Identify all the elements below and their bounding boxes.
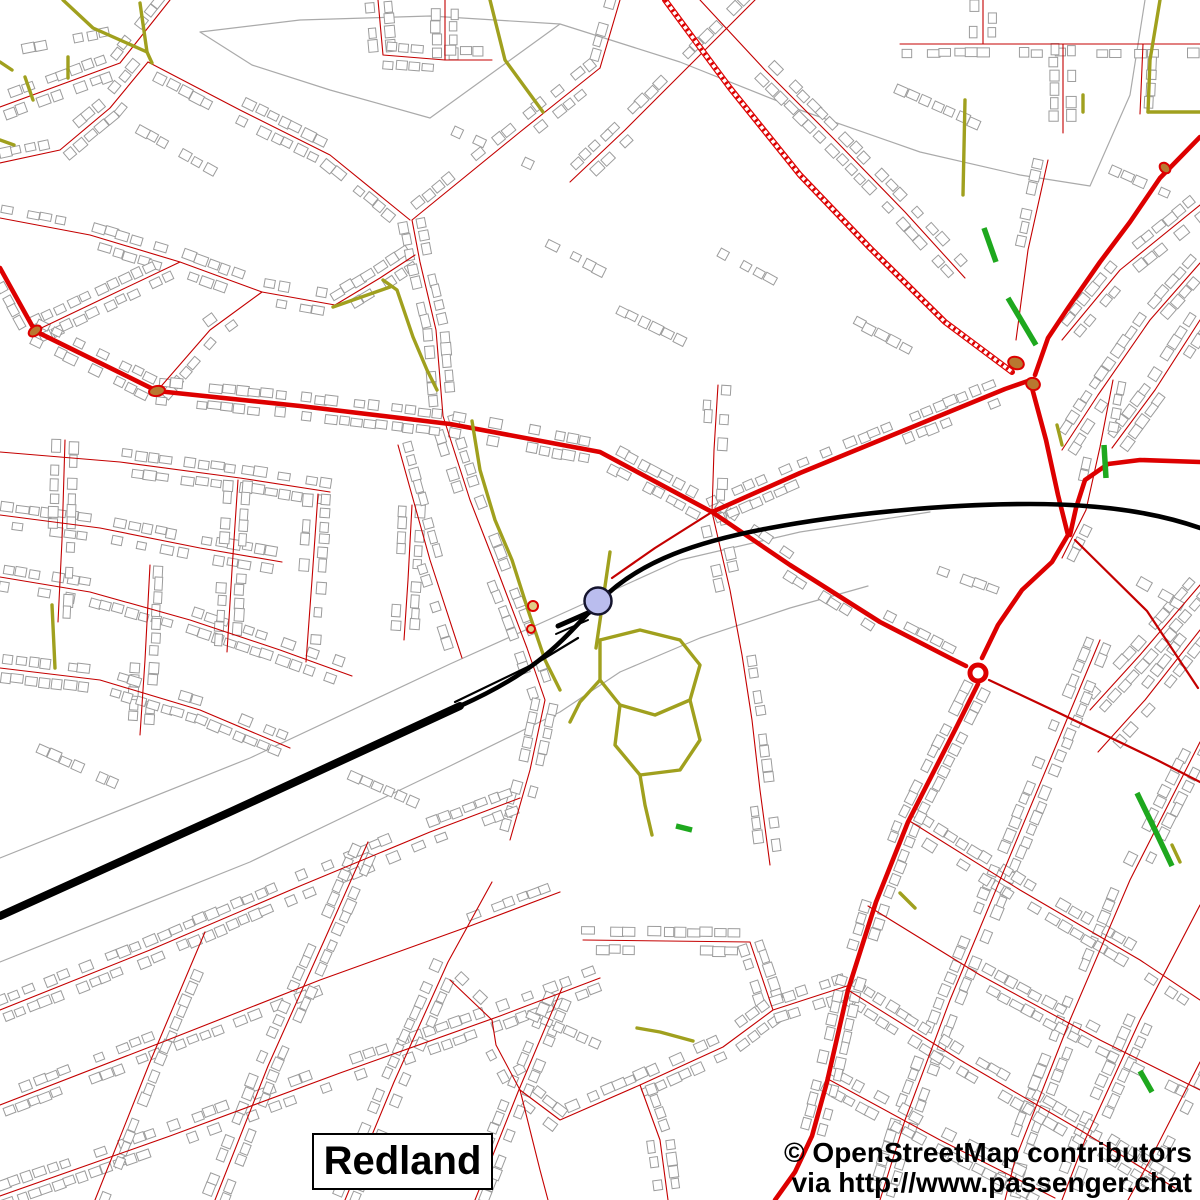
building-footprint [79,291,91,302]
building-footprint [320,477,332,488]
building-footprint [700,946,713,955]
building-footprint [198,460,209,470]
building-footprint [111,47,124,60]
building-footprint [392,422,403,432]
building-footprint [432,409,442,419]
building-footprint [1065,1109,1079,1122]
building-footprint [236,641,250,652]
building-footprint [149,277,162,289]
building-footprint [317,547,327,558]
building-footprint [441,636,454,650]
building-footprint [386,850,401,864]
building-footprint [320,950,332,964]
building-footprint [857,151,870,164]
building-footprint [1026,824,1037,836]
building-footprint [238,533,246,546]
building-footprint [0,673,11,684]
building-footprint [1067,547,1080,562]
building-footprint [215,634,223,646]
building-footprint [701,525,712,538]
building-footprint [63,1175,76,1186]
building-footprint [533,1086,546,1099]
building-footprint [240,509,248,521]
building-footprint [63,606,71,618]
building-footprint [1112,931,1126,944]
building-footprint [1028,1075,1042,1090]
building-footprint [1046,1082,1058,1095]
building-footprint [819,979,830,989]
building-footprint [763,772,774,783]
building-footprint [854,173,866,185]
building-footprint [864,1009,878,1021]
building-footprint [823,1108,833,1120]
building-footprint [526,442,538,454]
building-footprint [27,211,40,220]
building-footprint [932,255,945,268]
building-footprint [1084,314,1096,326]
building-footprint [191,694,203,705]
building-footprint [113,376,125,388]
building-footprint [170,378,183,389]
building-footprint [233,1015,248,1027]
building-footprint [1062,1047,1073,1060]
building-footprint [1141,1023,1152,1035]
building-footprint [1028,990,1042,1002]
building-footprint [830,1001,840,1013]
building-footprint [423,329,433,342]
building-footprint [242,98,257,112]
building-footprint [294,143,308,157]
building-footprint [438,442,450,456]
building-footprint [202,1105,216,1117]
building-footprint [387,42,397,51]
building-footprint [1068,46,1076,56]
building-footprint [473,990,488,1005]
building-footprint [843,1096,855,1107]
building-footprint [15,1100,30,1112]
building-footprint [735,1015,748,1028]
building-footprint [852,1080,865,1093]
building-footprint [368,28,376,39]
building-footprint [672,477,685,490]
building-footprint [1102,1106,1114,1118]
building-footprint [539,446,550,456]
building-footprint [405,405,416,415]
building-footprint [94,1146,107,1157]
building-footprint [1051,1069,1063,1082]
building-footprint [221,402,233,411]
building-footprint [395,268,408,281]
building-footprint [988,13,996,23]
building-footprint [1055,898,1070,912]
building-footprint [248,388,260,397]
building-footprint [497,1070,510,1084]
building-footprint [732,485,744,496]
building-footprint [39,1184,52,1195]
building-footprint [144,1129,156,1140]
building-footprint [911,206,923,218]
building-footprint [888,831,899,843]
building-footprint [1083,637,1093,648]
building-footprint [233,404,245,414]
building-footprint [460,450,470,463]
building-footprint [254,543,265,554]
building-footprint [571,66,586,80]
building-footprint [238,714,253,728]
building-footprint [501,123,516,137]
building-footprint [185,981,198,995]
building-footprint [214,924,227,937]
building-footprint [429,958,443,972]
building-footprint [982,963,996,976]
building-footprint [38,678,50,689]
building-footprint [226,918,239,930]
building-footprint [932,101,945,113]
building-footprint [115,230,130,242]
building-footprint [188,935,203,949]
building-footprint [156,397,167,406]
building-footprint [154,242,169,253]
building-footprint [1066,96,1076,107]
building-footprint [421,243,431,256]
building-footprint [113,248,124,259]
building-footprint [847,939,859,951]
building-footprint [462,802,476,813]
building-footprint [348,886,360,899]
building-footprint [693,1040,708,1053]
building-footprint [883,885,895,899]
building-footprint [136,1053,148,1063]
building-footprint [883,610,896,623]
building-footprint [771,839,781,852]
building-footprint [242,465,255,475]
building-footprint [398,222,409,235]
building-footprint [747,655,757,667]
building-footprint [455,437,467,449]
building-footprint [111,603,124,614]
building-footprint [291,491,302,501]
building-footprint [437,625,449,639]
building-footprint [397,532,405,545]
building-footprint [1133,312,1147,326]
building-footprint [1051,44,1059,55]
building-footprint [1016,982,1030,994]
building-footprint [974,902,984,914]
building-footprint [368,39,378,52]
building-footprint [85,306,99,319]
building-footprint [1,1197,15,1200]
building-footprint [243,735,257,746]
building-footprint [430,601,441,612]
building-footprint [268,1101,281,1113]
building-footprint [1123,851,1137,866]
building-footprint [1183,312,1196,327]
building-footprint [390,1094,403,1108]
building-footprint [110,967,123,978]
building-footprint [1079,958,1090,971]
building-footprint [686,485,699,498]
building-footprint [289,659,302,672]
building-footprint [836,154,848,166]
building-footprint [909,823,920,837]
place-label-redland: Redland [312,1133,493,1190]
building-footprint [192,1111,205,1122]
building-footprint [319,534,329,544]
building-footprint [551,84,564,97]
building-footprint [414,546,422,557]
building-footprint [519,749,530,762]
building-footprint [211,461,225,470]
building-footprint [1142,675,1155,688]
building-footprint [428,530,438,544]
building-footprint [491,590,503,604]
building-footprint [142,371,157,384]
building-footprint [503,1129,515,1142]
building-footprint [817,1123,828,1136]
building-footprint [1067,109,1076,121]
building-footprint [824,116,838,130]
building-footprint [320,1083,332,1094]
building-footprint [220,518,230,529]
building-footprint [561,449,575,461]
building-footprint [620,135,633,148]
building-footprint [88,1166,102,1178]
building-footprint [596,22,609,36]
building-footprint [63,147,76,160]
building-footprint [50,1087,62,1098]
building-footprint [460,1013,472,1024]
building-footprint [276,299,287,308]
building-footprint [868,928,880,941]
building-footprint [320,522,329,532]
building-footprint [1188,48,1200,58]
building-footprint [397,543,406,554]
building-footprint [727,561,738,573]
building-footprint [954,254,967,267]
building-footprint [589,1037,601,1049]
building-footprint [95,283,109,295]
building-footprint [853,923,864,936]
building-footprint [388,1056,400,1068]
building-footprint [350,1191,361,1200]
building-footprint [717,478,727,489]
building-footprint [160,544,174,555]
building-footprint [392,404,403,412]
building-footprint [1164,675,1177,688]
building-footprint [669,1052,684,1066]
building-footprint [736,1038,750,1051]
building-footprint [1189,598,1200,611]
junction-node [527,625,535,633]
building-footprint [465,463,476,475]
building-footprint [714,1052,727,1063]
building-footprint [320,508,330,518]
building-footprint [941,641,956,653]
building-footprint [1068,70,1076,81]
building-footprint [955,838,968,850]
building-footprint [118,272,132,284]
building-footprint [410,276,422,290]
building-footprint [976,1057,990,1069]
building-footprint [403,441,414,452]
building-footprint [429,427,440,436]
building-footprint [436,313,447,326]
building-footprint [506,627,518,640]
building-footprint [224,464,235,473]
building-footprint [902,431,915,444]
building-footprint [431,21,440,33]
building-footprint [48,519,57,529]
building-footprint [411,582,421,593]
building-footprint [1051,98,1058,109]
building-footprint [199,276,214,289]
building-footprint [265,883,277,895]
building-footprint [60,1159,71,1169]
building-footprint [236,574,246,584]
building-footprint [67,504,76,517]
building-footprint [78,512,92,521]
building-footprint [125,58,140,73]
building-footprint [411,195,425,209]
building-footprint [22,983,35,994]
building-footprint [183,919,195,929]
building-footprint [209,384,223,394]
building-footprint [664,927,673,936]
building-footprint [115,294,127,305]
building-footprint [316,287,327,298]
building-footprint [127,289,140,301]
building-footprint [67,478,77,489]
building-footprint [149,662,159,673]
building-footprint [93,1052,104,1062]
building-footprint [301,411,311,421]
building-footprint [16,505,30,514]
building-footprint [7,1175,20,1187]
building-footprint [281,638,296,651]
building-footprint [78,682,89,692]
building-footprint [1095,1074,1108,1088]
building-footprint [763,272,777,285]
building-footprint [824,1026,835,1040]
building-footprint [943,106,955,117]
building-footprint [55,216,66,225]
building-footprint [755,705,765,715]
building-footprint [170,706,184,717]
building-footprint [144,714,154,724]
building-footprint [203,930,216,943]
building-footprint [37,1091,52,1103]
building-footprint [1100,294,1113,307]
building-footprint [383,61,393,70]
building-footprint [503,1016,518,1029]
building-footprint [976,688,990,703]
building-footprint [840,1042,850,1055]
building-footprint [473,135,487,147]
building-footprint [73,338,85,349]
building-footprint [545,239,560,252]
building-footprint [749,668,759,678]
building-footprint [218,595,227,605]
building-footprint [3,107,17,120]
building-footprint [1090,1087,1103,1100]
building-footprint [1068,906,1082,919]
building-footprint [36,94,51,107]
building-footprint [66,542,74,552]
building-footprint [81,58,94,70]
building-footprint [217,610,225,621]
building-footprint [473,1008,485,1020]
building-footprint [396,60,407,70]
building-footprint [446,467,459,481]
building-footprint [67,296,81,308]
building-footprint [740,260,752,271]
building-footprint [132,365,144,376]
building-footprint [460,47,471,55]
building-footprint [921,759,933,773]
building-footprint [203,313,217,327]
building-footprint [116,1042,130,1053]
building-footprint [79,577,91,586]
building-footprint [216,1148,228,1162]
building-footprint [187,1034,199,1044]
building-footprint [159,455,172,464]
building-footprint [725,947,738,955]
building-footprint [260,388,273,398]
building-footprint [1120,436,1135,452]
building-footprint [1112,1082,1125,1094]
building-footprint [581,927,594,935]
building-footprint [488,417,502,429]
building-footprint [21,42,35,54]
building-footprint [416,218,426,229]
building-footprint [235,1154,247,1166]
building-footprint [876,1017,889,1029]
building-footprint [445,370,453,381]
building-footprint [1145,973,1158,986]
building-footprint [51,679,62,690]
building-footprint [874,328,889,342]
building-footprint [238,560,251,570]
building-footprint [129,942,141,953]
building-footprint [1195,210,1200,224]
building-footprint [324,395,338,406]
building-footprint [502,615,515,630]
building-footprint [114,1156,126,1169]
building-footprint [302,494,313,507]
building-footprint [817,1050,829,1064]
building-footprint [675,927,686,937]
building-footprint [108,80,121,93]
building-footprint [604,0,617,10]
building-footprint [1081,457,1091,470]
building-footprint [239,520,248,532]
building-footprint [151,633,160,643]
building-footprint [54,304,67,316]
building-footprint [278,489,290,500]
building-footprint [1080,419,1094,435]
building-footprint [69,442,79,455]
building-footprint [1055,750,1067,762]
building-footprint [303,665,315,676]
building-footprint [1078,1035,1092,1047]
building-footprint [933,997,944,1009]
building-footprint [743,479,755,491]
building-footprint [487,435,500,446]
building-footprint [73,33,84,43]
building-footprint [166,78,180,91]
building-footprint [795,985,807,997]
building-footprint [970,0,979,11]
